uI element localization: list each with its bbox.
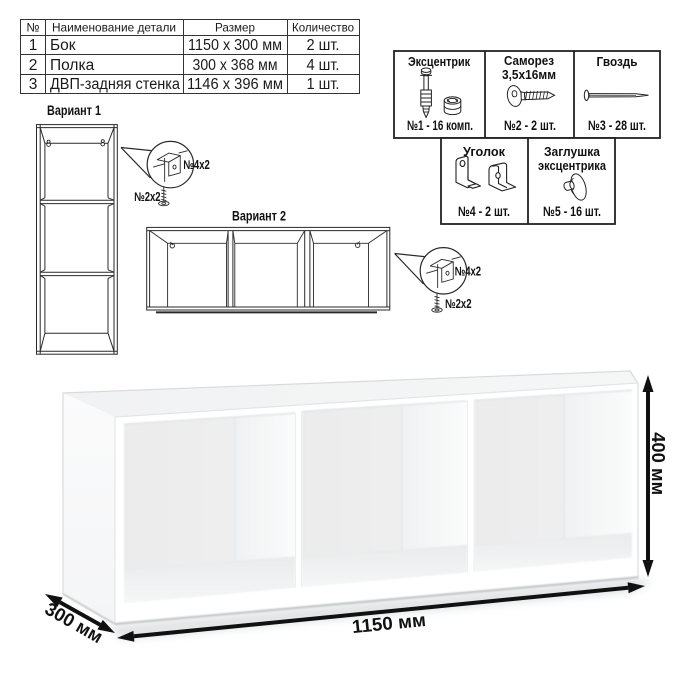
svg-text:Бок: Бок	[50, 37, 76, 54]
svg-text:Вариант 1: Вариант 1	[47, 103, 101, 118]
svg-text:№5 - 16 шт.: №5 - 16 шт.	[543, 204, 601, 219]
svg-text:2: 2	[29, 57, 38, 74]
svg-text:Уголок: Уголок	[463, 144, 506, 159]
svg-text:4 шт.: 4 шт.	[307, 57, 340, 74]
svg-text:2 шт.: 2 шт.	[307, 37, 340, 54]
svg-text:№4 - 2 шт.: №4 - 2 шт.	[458, 204, 510, 219]
svg-text:1 шт.: 1 шт.	[307, 76, 340, 93]
svg-text:1150 х 300 мм: 1150 х 300 мм	[188, 37, 282, 54]
svg-text:№2х2: №2х2	[445, 297, 472, 311]
svg-text:Размер: Размер	[215, 21, 255, 35]
svg-text:Гвоздь: Гвоздь	[597, 54, 638, 69]
svg-text:Заглушка: Заглушка	[544, 144, 601, 159]
svg-text:3,5х16мм: 3,5х16мм	[502, 67, 556, 82]
svg-text:300 х 368 мм: 300 х 368 мм	[193, 57, 278, 74]
svg-text:№: №	[26, 21, 39, 35]
svg-text:№2х2: №2х2	[134, 190, 161, 204]
svg-text:№4х2: №4х2	[183, 158, 210, 172]
svg-text:1: 1	[29, 37, 38, 54]
svg-text:эксцентрика: эксцентрика	[538, 158, 607, 173]
svg-text:№2 - 2 шт.: №2 - 2 шт.	[504, 118, 556, 133]
svg-text:Эксцентрик: Эксцентрик	[408, 54, 470, 69]
svg-text:№1 - 16 комп.: №1 - 16 комп.	[407, 118, 473, 133]
svg-text:1146 х 396 мм: 1146 х 396 мм	[187, 76, 283, 93]
svg-text:Полка: Полка	[50, 57, 95, 74]
svg-text:Наименование детали: Наименование детали	[52, 21, 176, 35]
svg-text:Количество: Количество	[292, 21, 354, 35]
svg-text:Саморез: Саморез	[504, 53, 554, 68]
svg-text:Вариант 2: Вариант 2	[232, 209, 286, 224]
svg-text:400 мм: 400 мм	[648, 432, 669, 495]
svg-text:№3 - 28 шт.: №3 - 28 шт.	[588, 118, 646, 133]
svg-text:№4х2: №4х2	[455, 264, 482, 278]
svg-text:ДВП-задняя стенка: ДВП-задняя стенка	[50, 76, 180, 93]
svg-text:3: 3	[29, 76, 38, 93]
